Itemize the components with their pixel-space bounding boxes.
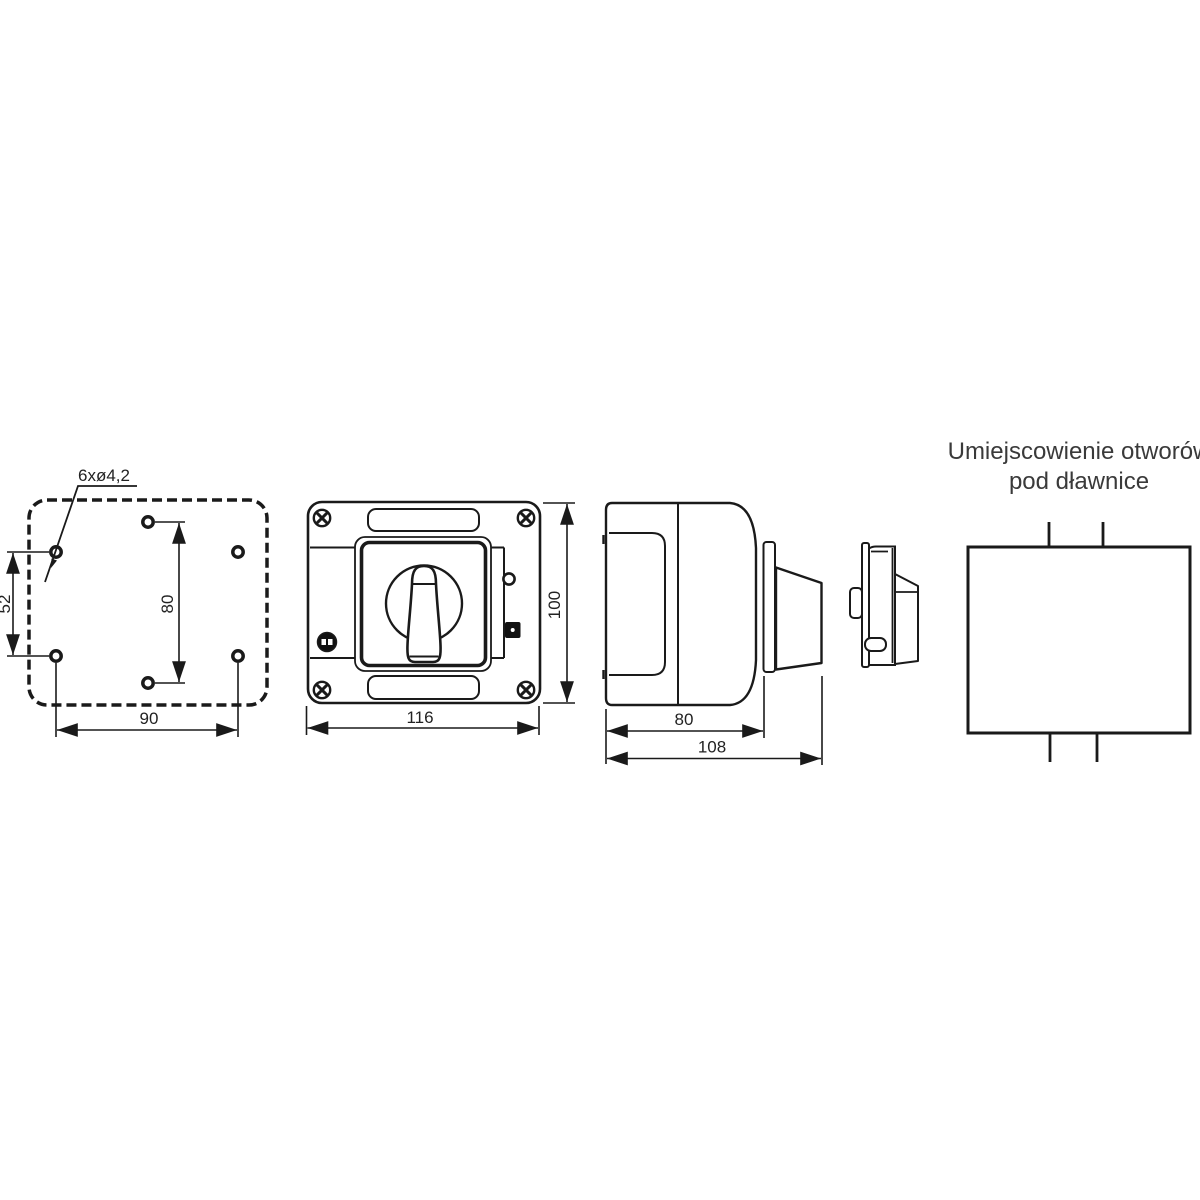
hole-bottom-center <box>143 678 153 688</box>
side-knob-profile <box>776 568 822 670</box>
phillips-screw-icon <box>314 682 330 698</box>
back-outline-dashed <box>29 500 267 705</box>
back-view: 6xø4,2 52 80 90 <box>0 466 267 737</box>
hole-callout-label: 6xø4,2 <box>78 466 130 485</box>
switch-knob-handle[interactable] <box>407 566 440 662</box>
hole-top-right <box>233 547 243 557</box>
hole-bottom-left <box>51 651 61 661</box>
ip-rating-badge-icon <box>318 633 337 652</box>
side-bezel-strip <box>764 542 776 672</box>
enclosure-dimension-drawing: 6xø4,2 52 80 90 <box>0 0 1200 1200</box>
membrane-button-icon[interactable] <box>505 622 521 638</box>
top-label-plate <box>368 509 479 531</box>
phillips-screw-icon <box>518 682 534 698</box>
profile-side-tab <box>850 588 862 618</box>
dim-80-back-label: 80 <box>158 595 177 614</box>
dim-90-label: 90 <box>140 709 159 728</box>
hole-bottom-right <box>233 651 243 661</box>
gland-title-line1: Umiejscowienie otworów <box>948 438 1200 465</box>
indicator-lamp-icon <box>503 573 514 584</box>
dim-52: 52 <box>0 552 49 656</box>
front-view: 116 100 <box>307 502 576 735</box>
bottom-label-plate <box>368 676 479 699</box>
dim-80-side-label: 80 <box>675 710 694 729</box>
profile-knob <box>895 574 918 664</box>
phillips-screw-icon <box>518 510 534 526</box>
dim-80-back: 80 <box>155 522 185 683</box>
side-view: 80 108 <box>604 503 823 765</box>
dim-90: 90 <box>56 663 238 737</box>
dim-116: 116 <box>307 706 540 735</box>
gland-location-view: Umiejscowienie otworów pod dławnice <box>948 438 1200 762</box>
hole-callout-arrow <box>51 559 57 569</box>
mounting-holes <box>51 517 243 688</box>
profile-latch <box>865 638 886 651</box>
phillips-screw-icon <box>314 510 330 526</box>
dim-100: 100 <box>543 503 575 703</box>
cover-profile-view <box>850 543 918 667</box>
dim-108-label: 108 <box>698 738 726 757</box>
dim-116-label: 116 <box>406 708 433 727</box>
hole-top-center <box>143 517 153 527</box>
dim-100-label: 100 <box>545 591 564 619</box>
technical-drawing-page: 6xø4,2 52 80 90 <box>0 0 1200 1200</box>
gland-box-outline <box>968 547 1190 733</box>
gland-title-line2: pod dławnice <box>1009 468 1149 495</box>
dim-52-label: 52 <box>0 595 14 614</box>
